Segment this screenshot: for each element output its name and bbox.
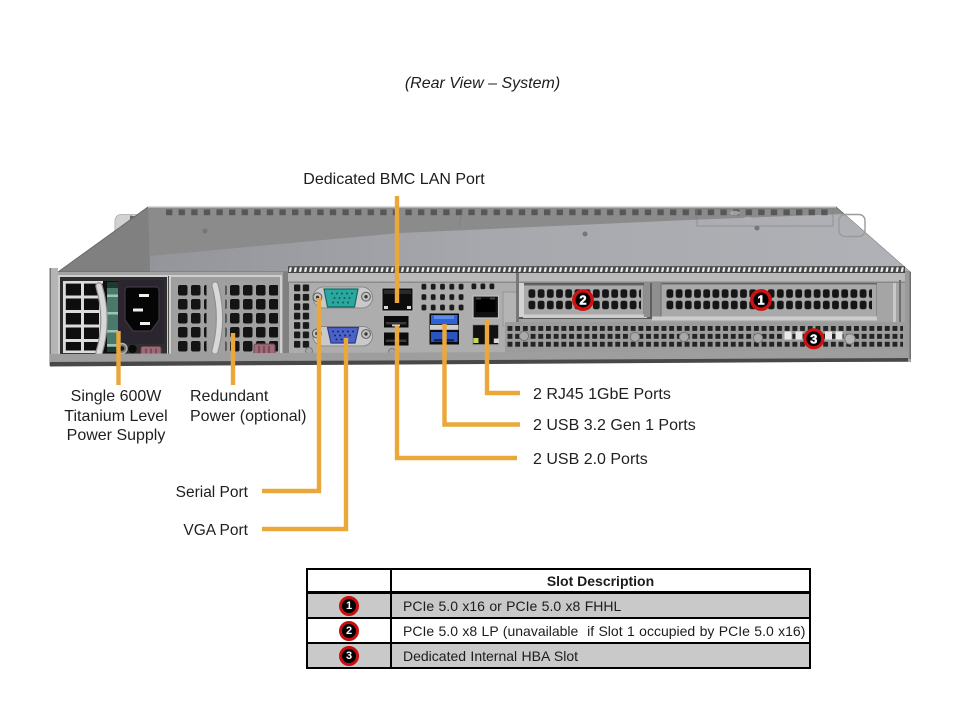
- svg-text:3: 3: [810, 331, 817, 346]
- svg-text:1: 1: [757, 293, 764, 308]
- svg-text:2: 2: [579, 293, 586, 308]
